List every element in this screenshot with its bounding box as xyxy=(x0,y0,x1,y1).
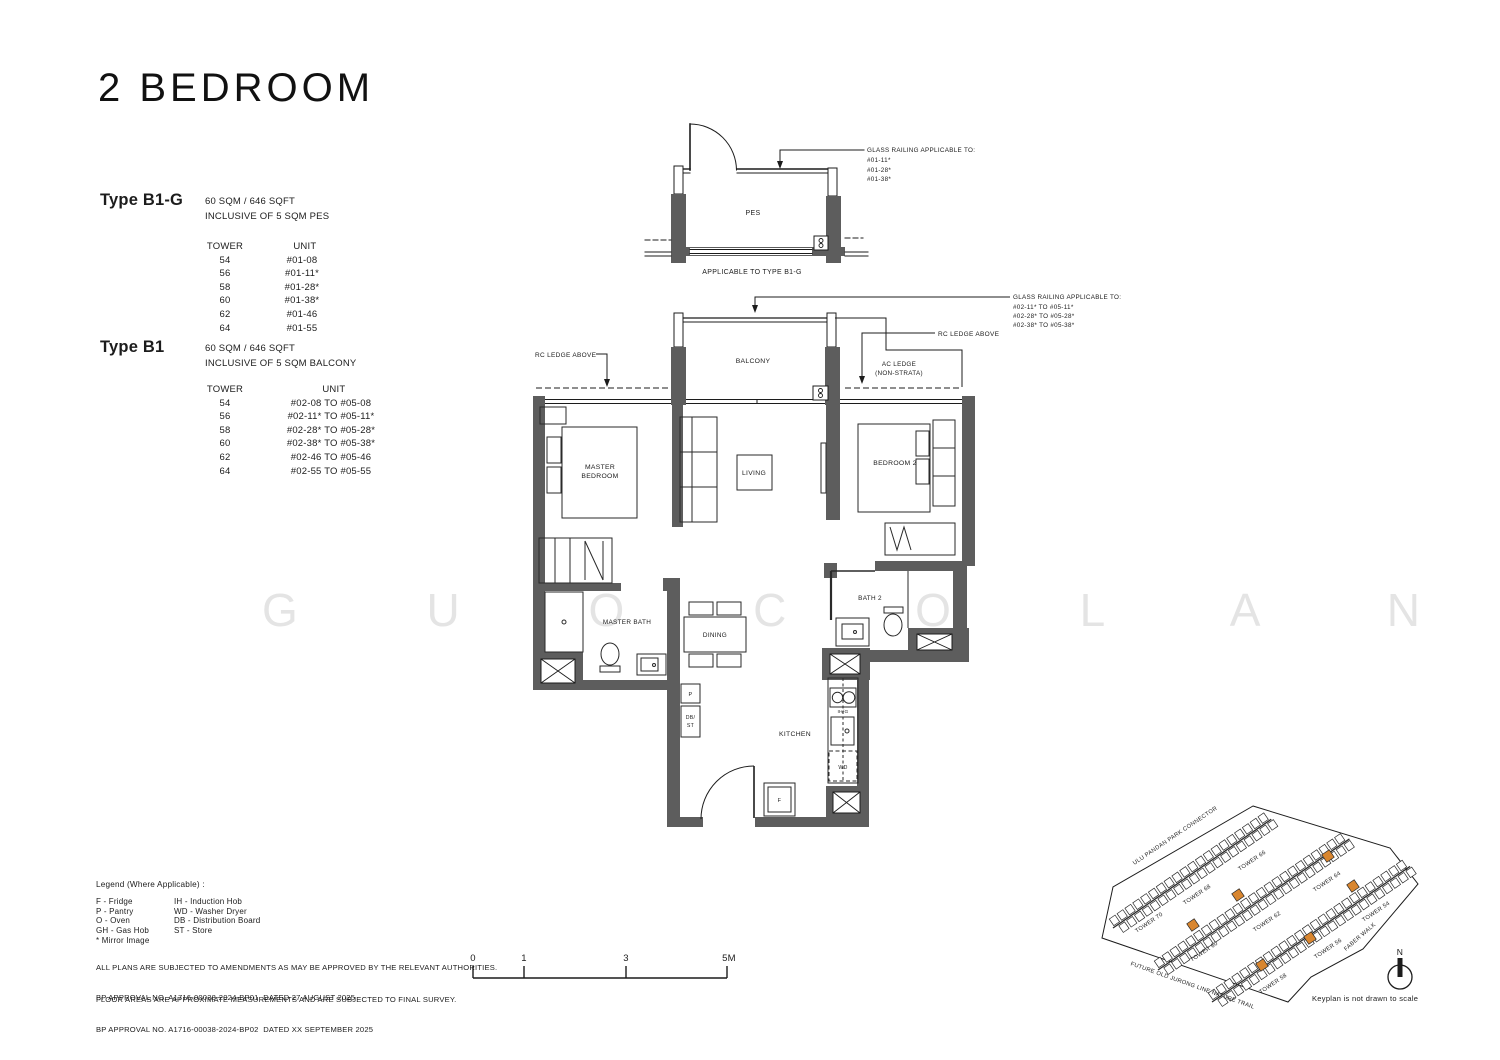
pes-railing-line: #01-38* xyxy=(867,176,891,183)
unit-cell: #02-28* TO #05-28* xyxy=(264,424,398,438)
master-bedroom-furniture xyxy=(539,407,637,583)
keyplan: TOWER 70 TOWER 68 TOWER 66 TOWER 60 TOWE… xyxy=(1102,806,1418,1011)
wall-right xyxy=(962,396,975,566)
ac-ledge-label-1: AC LEDGE xyxy=(882,361,916,368)
scale-5m: 5M xyxy=(722,953,736,964)
legend-item: GH - Gas Hob xyxy=(96,926,149,936)
unit-cell: #01-46 xyxy=(264,308,340,322)
tower-cell: 62 xyxy=(202,451,248,465)
window-line xyxy=(545,400,962,404)
type-b1-area: 60 SQM / 646 SQFT xyxy=(205,341,356,356)
unit-cell: #02-55 TO #05-55 xyxy=(264,465,398,479)
north-label: N xyxy=(1397,947,1403,957)
master-bedroom-label-1: MASTER xyxy=(585,464,615,471)
ac-ledge-label-2: (NON-STRATA) xyxy=(875,370,923,377)
pantry-label: P xyxy=(689,692,693,698)
tower-cell: 54 xyxy=(202,397,248,411)
unit-cell: #01-28* xyxy=(264,281,340,295)
tower-cell: 62 xyxy=(202,308,248,322)
fridge-label: F xyxy=(778,798,782,804)
kitchen-label: KITCHEN xyxy=(779,731,811,738)
pes-railing-line: #01-11* xyxy=(867,157,891,164)
pes-railing-line: #01-28* xyxy=(867,167,891,174)
keyplan-highlighted-unit xyxy=(1187,919,1200,932)
legend-item: IH - Induction Hob xyxy=(174,897,260,907)
upper-railing-line: #02-11* TO #05-11* xyxy=(1013,304,1074,311)
unit-cell: #01-11* xyxy=(264,267,340,281)
scale-1: 1 xyxy=(521,953,527,964)
keyplan-strips xyxy=(1108,811,1417,1010)
tower-header: TOWER xyxy=(202,383,248,397)
pes-railing-leader xyxy=(780,150,864,162)
legend-col1: F - Fridge P - Pantry O - Oven GH - Gas … xyxy=(96,897,149,946)
hob-label: IH/G xyxy=(837,709,848,715)
pes-label: PES xyxy=(746,210,761,217)
unit-cell: #02-38* TO #05-38* xyxy=(264,437,398,451)
unit-cell: #02-46 TO #05-46 xyxy=(264,451,398,465)
bedroom2-furniture xyxy=(858,420,955,555)
dining-label: DINING xyxy=(703,632,727,639)
scale-bar: 0 1 3 5M xyxy=(470,953,736,978)
table-row: 58#01-28* xyxy=(202,281,343,295)
tower-header: TOWER xyxy=(202,240,248,254)
unit-header: UNIT xyxy=(267,383,401,397)
table-row: 64#01-55 xyxy=(202,322,343,336)
tower-cell: 56 xyxy=(202,267,248,281)
tower-cell: 64 xyxy=(202,465,248,479)
legend-item: F - Fridge xyxy=(96,897,149,907)
unit-cell: #02-08 TO #05-08 xyxy=(264,397,398,411)
living-label: LIVING xyxy=(742,470,766,477)
tower-cell: 54 xyxy=(202,254,248,268)
legend-item: WD - Washer Dryer xyxy=(174,907,260,917)
keyplan-tower-64: TOWER 64 xyxy=(1313,870,1343,893)
balcony-label: BALCONY xyxy=(736,358,771,365)
type-b1g-area: 60 SQM / 646 SQFT xyxy=(205,194,329,209)
bp-approvals: BP APPROVAL NO. A1716-00038-2024-BP01 DA… xyxy=(96,971,373,1057)
rc-ledge-left-label: RC LEDGE ABOVE xyxy=(535,352,597,359)
bedroom2-label: BEDROOM 2 xyxy=(873,460,917,467)
legend-item: ST - Store xyxy=(174,926,260,936)
keyplan-tower-62: TOWER 62 xyxy=(1253,911,1283,934)
type-b1-inclusive: INCLUSIVE OF 5 SQM BALCONY xyxy=(205,356,356,371)
upper-railing-line: #02-38* TO #05-38* xyxy=(1013,322,1075,329)
upper-railing-title: GLASS RAILING APPLICABLE TO: xyxy=(1013,294,1121,301)
table-header: TOWER UNIT xyxy=(202,240,343,254)
table-row: 60#02-38* TO #05-38* xyxy=(202,437,401,451)
table-row: 56#02-11* TO #05-11* xyxy=(202,410,401,424)
type-b1g-inclusive: INCLUSIVE OF 5 SQM PES xyxy=(205,209,329,224)
keyplan-tower-66: TOWER 66 xyxy=(1238,850,1268,873)
legend-item: P - Pantry xyxy=(96,907,149,917)
bp-approval-line: BP APPROVAL NO. A1716-00038-2024-BP01 DA… xyxy=(96,993,373,1004)
type-b1-meta: 60 SQM / 646 SQFT INCLUSIVE OF 5 SQM BAL… xyxy=(205,341,356,371)
page-title: 2 BEDROOM xyxy=(98,66,374,111)
table-row: 62#01-46 xyxy=(202,308,343,322)
table-row: 64#02-55 TO #05-55 xyxy=(202,465,401,479)
table-row: 58#02-28* TO #05-28* xyxy=(202,424,401,438)
legend-item: DB - Distribution Board xyxy=(174,916,260,926)
tower-cell: 58 xyxy=(202,281,248,295)
table-row: 62#02-46 TO #05-46 xyxy=(202,451,401,465)
unit-header: UNIT xyxy=(267,240,343,254)
pes-plan: PES APPLICABLE TO TYPE B1-G GLASS RAILIN… xyxy=(645,124,975,276)
legend-title: Legend (Where Applicable) : xyxy=(96,880,205,889)
pes-railing-title: GLASS RAILING APPLICABLE TO: xyxy=(867,147,975,154)
pes-door-arc xyxy=(690,124,737,170)
legend-col2: IH - Induction Hob WD - Washer Dryer DB … xyxy=(174,897,260,936)
keyplan-highlighted-unit xyxy=(1232,889,1245,902)
wd-label: WD xyxy=(838,765,847,771)
st-label: ST xyxy=(687,723,695,729)
main-plan: BALCONY MASTER BEDROOM LIVING BEDROOM 2 … xyxy=(533,294,1121,827)
entrance-door-arc xyxy=(701,766,754,819)
tower-cell: 56 xyxy=(202,410,248,424)
scale-3: 3 xyxy=(623,953,629,964)
north-arrow-icon: N xyxy=(1388,947,1412,989)
pes-railing-arrow xyxy=(777,161,783,169)
keyplan-highlighted-unit xyxy=(1347,880,1360,893)
tower-cell: 60 xyxy=(202,437,248,451)
bath2-fixtures xyxy=(831,571,908,646)
table-row: 54#01-08 xyxy=(202,254,343,268)
upper-railing-line: #02-28* TO #05-28* xyxy=(1013,313,1075,320)
master-bedroom-label-2: BEDROOM xyxy=(581,473,618,480)
keyplan-note: Keyplan is not drawn to scale xyxy=(1312,994,1418,1003)
tower-cell: 58 xyxy=(202,424,248,438)
legend-item: O - Oven xyxy=(96,916,149,926)
keyplan-street-faber: FABER WALK xyxy=(1343,922,1377,953)
bath2-label: BATH 2 xyxy=(858,595,882,602)
tower-cell: 60 xyxy=(202,294,248,308)
table-row: 54#02-08 TO #05-08 xyxy=(202,397,401,411)
table-row: 60#01-38* xyxy=(202,294,343,308)
unit-cell: #01-08 xyxy=(264,254,340,268)
unit-cell: #01-38* xyxy=(264,294,340,308)
type-b1-table: TOWER UNIT 54#02-08 TO #05-08 56#02-11* … xyxy=(202,383,401,478)
table-row: 56#01-11* xyxy=(202,267,343,281)
db-label: DB/ xyxy=(686,715,696,721)
type-b1g-meta: 60 SQM / 646 SQFT INCLUSIVE OF 5 SQM PES xyxy=(205,194,329,224)
unit-cell: #02-11* TO #05-11* xyxy=(264,410,398,424)
table-header: TOWER UNIT xyxy=(202,383,401,397)
applicable-note: APPLICABLE TO TYPE B1-G xyxy=(702,269,802,276)
type-b1-name: Type B1 xyxy=(100,338,164,357)
tower-cell: 64 xyxy=(202,322,248,336)
bp-approval-line: BP APPROVAL NO. A1716-00038-2024-BP02 DA… xyxy=(96,1025,373,1036)
type-b1g-name: Type B1-G xyxy=(100,191,183,210)
rc-ledge-right-label: RC LEDGE ABOVE xyxy=(938,331,1000,338)
type-b1g-table: TOWER UNIT 54#01-08 56#01-11* 58#01-28* … xyxy=(202,240,343,335)
unit-cell: #01-55 xyxy=(264,322,340,336)
master-bath-label: MASTER BATH xyxy=(603,619,651,626)
floorplan-page: G U O C O L A N D _ xyxy=(0,0,1500,1060)
